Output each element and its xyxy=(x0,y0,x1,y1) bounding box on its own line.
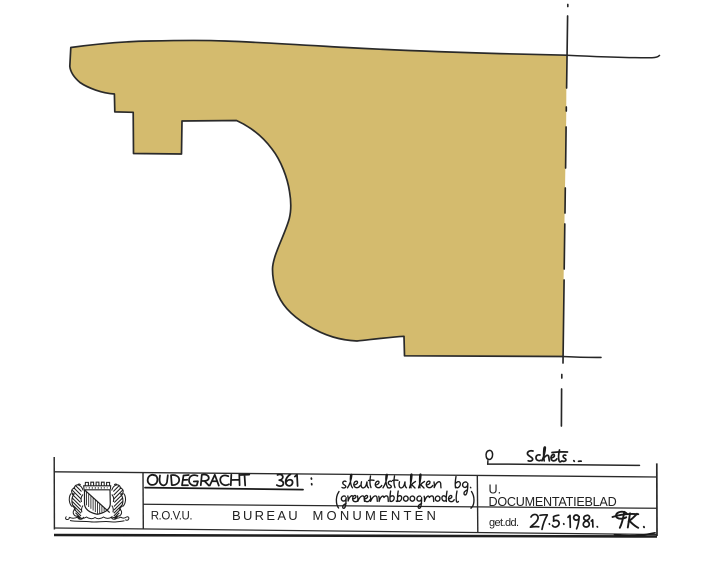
svg-text:R.O.V.U.: R.O.V.U. xyxy=(151,511,193,523)
svg-text:BUREAU: BUREAU xyxy=(232,508,300,523)
svg-text:MONUMENTEN: MONUMENTEN xyxy=(313,508,440,523)
svg-text:DOCUMENTATIEBLAD: DOCUMENTATIEBLAD xyxy=(489,495,617,509)
svg-text:get.dd.: get.dd. xyxy=(489,517,519,529)
